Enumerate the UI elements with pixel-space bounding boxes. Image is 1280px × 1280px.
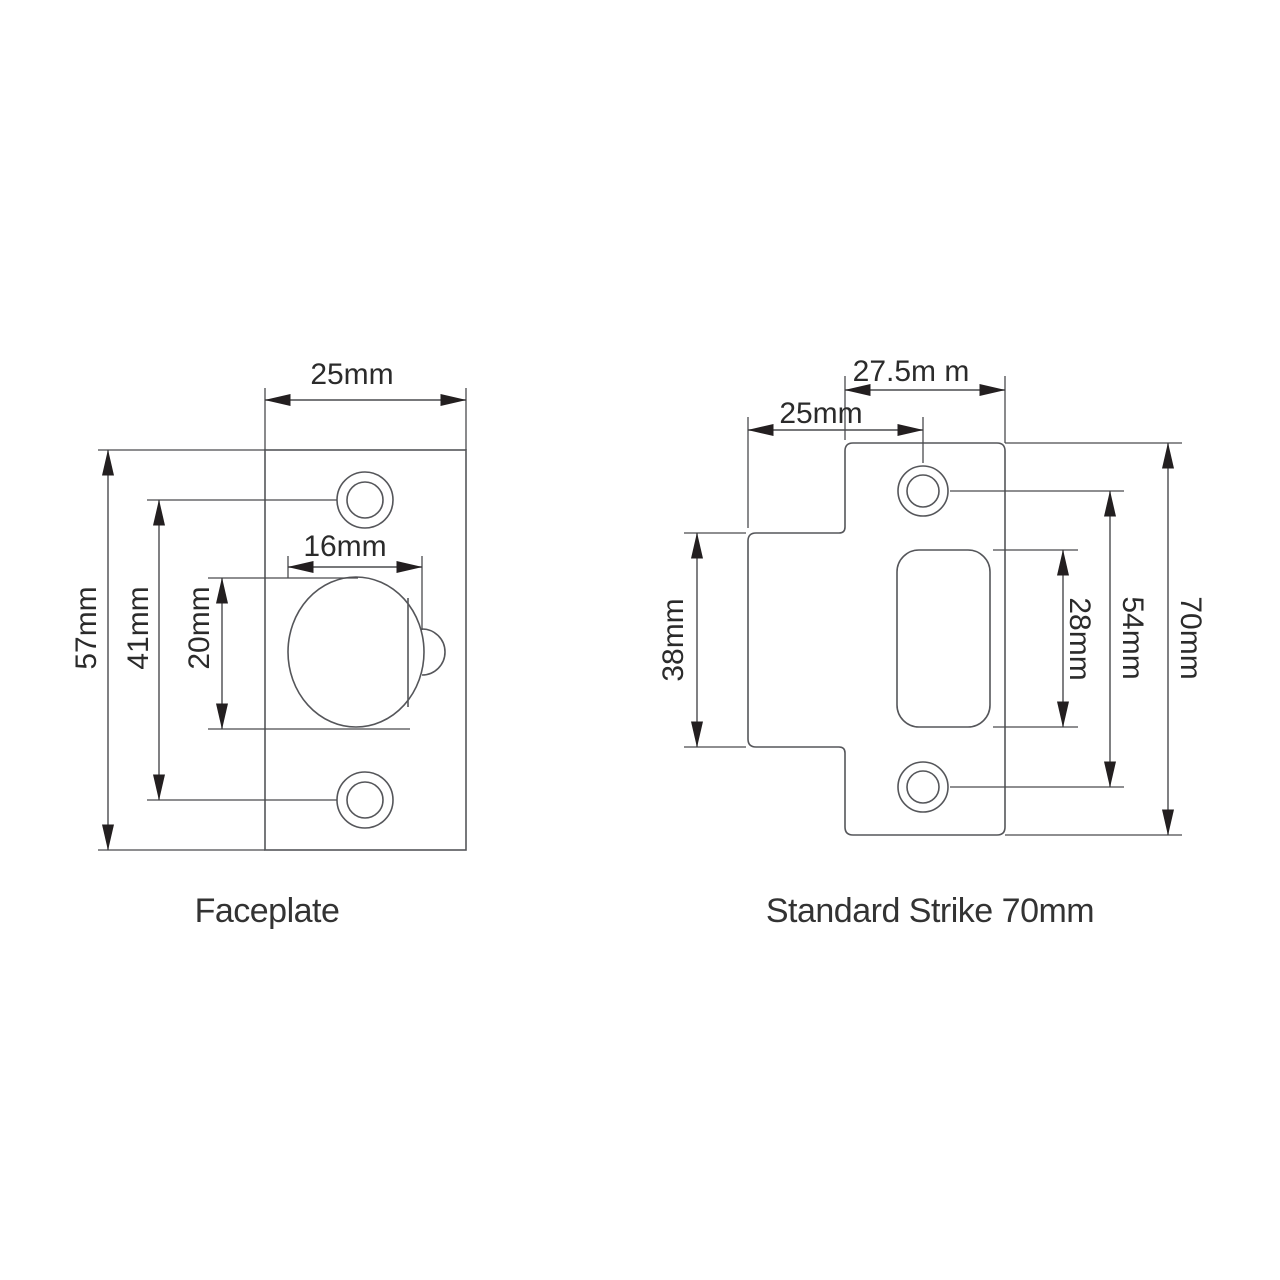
strike-outline [748,443,1005,835]
extension-lines [950,491,1124,787]
dim-label-latch-width: 16mm [303,530,386,563]
faceplate-screw-hole-top [337,472,393,528]
dim-label-faceplate-width: 25mm [310,358,393,391]
dim-label-faceplate-height: 57mm [70,586,103,669]
dim-faceplate-width: 25mm [265,358,466,450]
dim-label-strike-lip-to-screw: 25mm [779,397,862,430]
strike-caption: Standard Strike 70mm [766,892,1094,930]
extension-lines [265,388,466,450]
dim-strike-lip-height: 38mm [657,533,746,747]
dim-label-strike-cutout-height: 28mm [1063,597,1096,680]
dim-label-latch-height: 20mm [183,586,216,669]
faceplate-caption: Faceplate [195,892,340,930]
screw-hole-outer-circle [898,466,948,516]
screw-hole-outer-circle [898,762,948,812]
dim-label-strike-height: 70mm [1174,596,1207,679]
extension-lines [684,533,746,747]
dim-latch-width: 16mm [288,530,422,630]
latch-bolt-nub [422,629,445,675]
screw-hole-outer-circle [337,772,393,828]
dim-strike-cutout-height: 28mm [993,550,1096,727]
screw-hole-inner-circle [907,475,939,507]
dim-strike-height: 70mm [1005,443,1207,835]
screw-hole-inner-circle [347,782,383,818]
latch-bolt-body [288,577,424,727]
faceplate-screw-hole-bottom [337,772,393,828]
dim-label-strike-lip-height: 38mm [657,598,690,681]
technical-drawing-canvas: 25mm 57mm 41mm 20mm 16mm Faceplate [0,0,1280,1280]
dim-strike-lip-to-screw: 25mm [748,397,923,528]
dim-label-strike-width: 27.5m m [853,355,970,388]
screw-hole-outer-circle [337,472,393,528]
dim-faceplate-height: 57mm [70,450,265,850]
dim-label-faceplate-screw-spacing: 41mm [122,586,155,669]
dim-latch-height: 20mm [183,578,410,729]
strike-screw-hole-top [898,466,948,516]
faceplate-outline [265,450,466,850]
extension-lines [748,417,923,528]
strike-latch-cutout [897,550,990,727]
dim-strike-screw-spacing: 54mm [950,491,1149,787]
strike-screw-hole-bottom [898,762,948,812]
screw-hole-inner-circle [907,771,939,803]
dim-label-strike-screw-spacing: 54mm [1116,596,1149,679]
screw-hole-inner-circle [347,482,383,518]
faceplate-diagram: 25mm 57mm 41mm 20mm 16mm Faceplate [70,358,466,930]
strike-diagram: 27.5m m 25mm 38mm 28mm 54mm [657,355,1207,930]
